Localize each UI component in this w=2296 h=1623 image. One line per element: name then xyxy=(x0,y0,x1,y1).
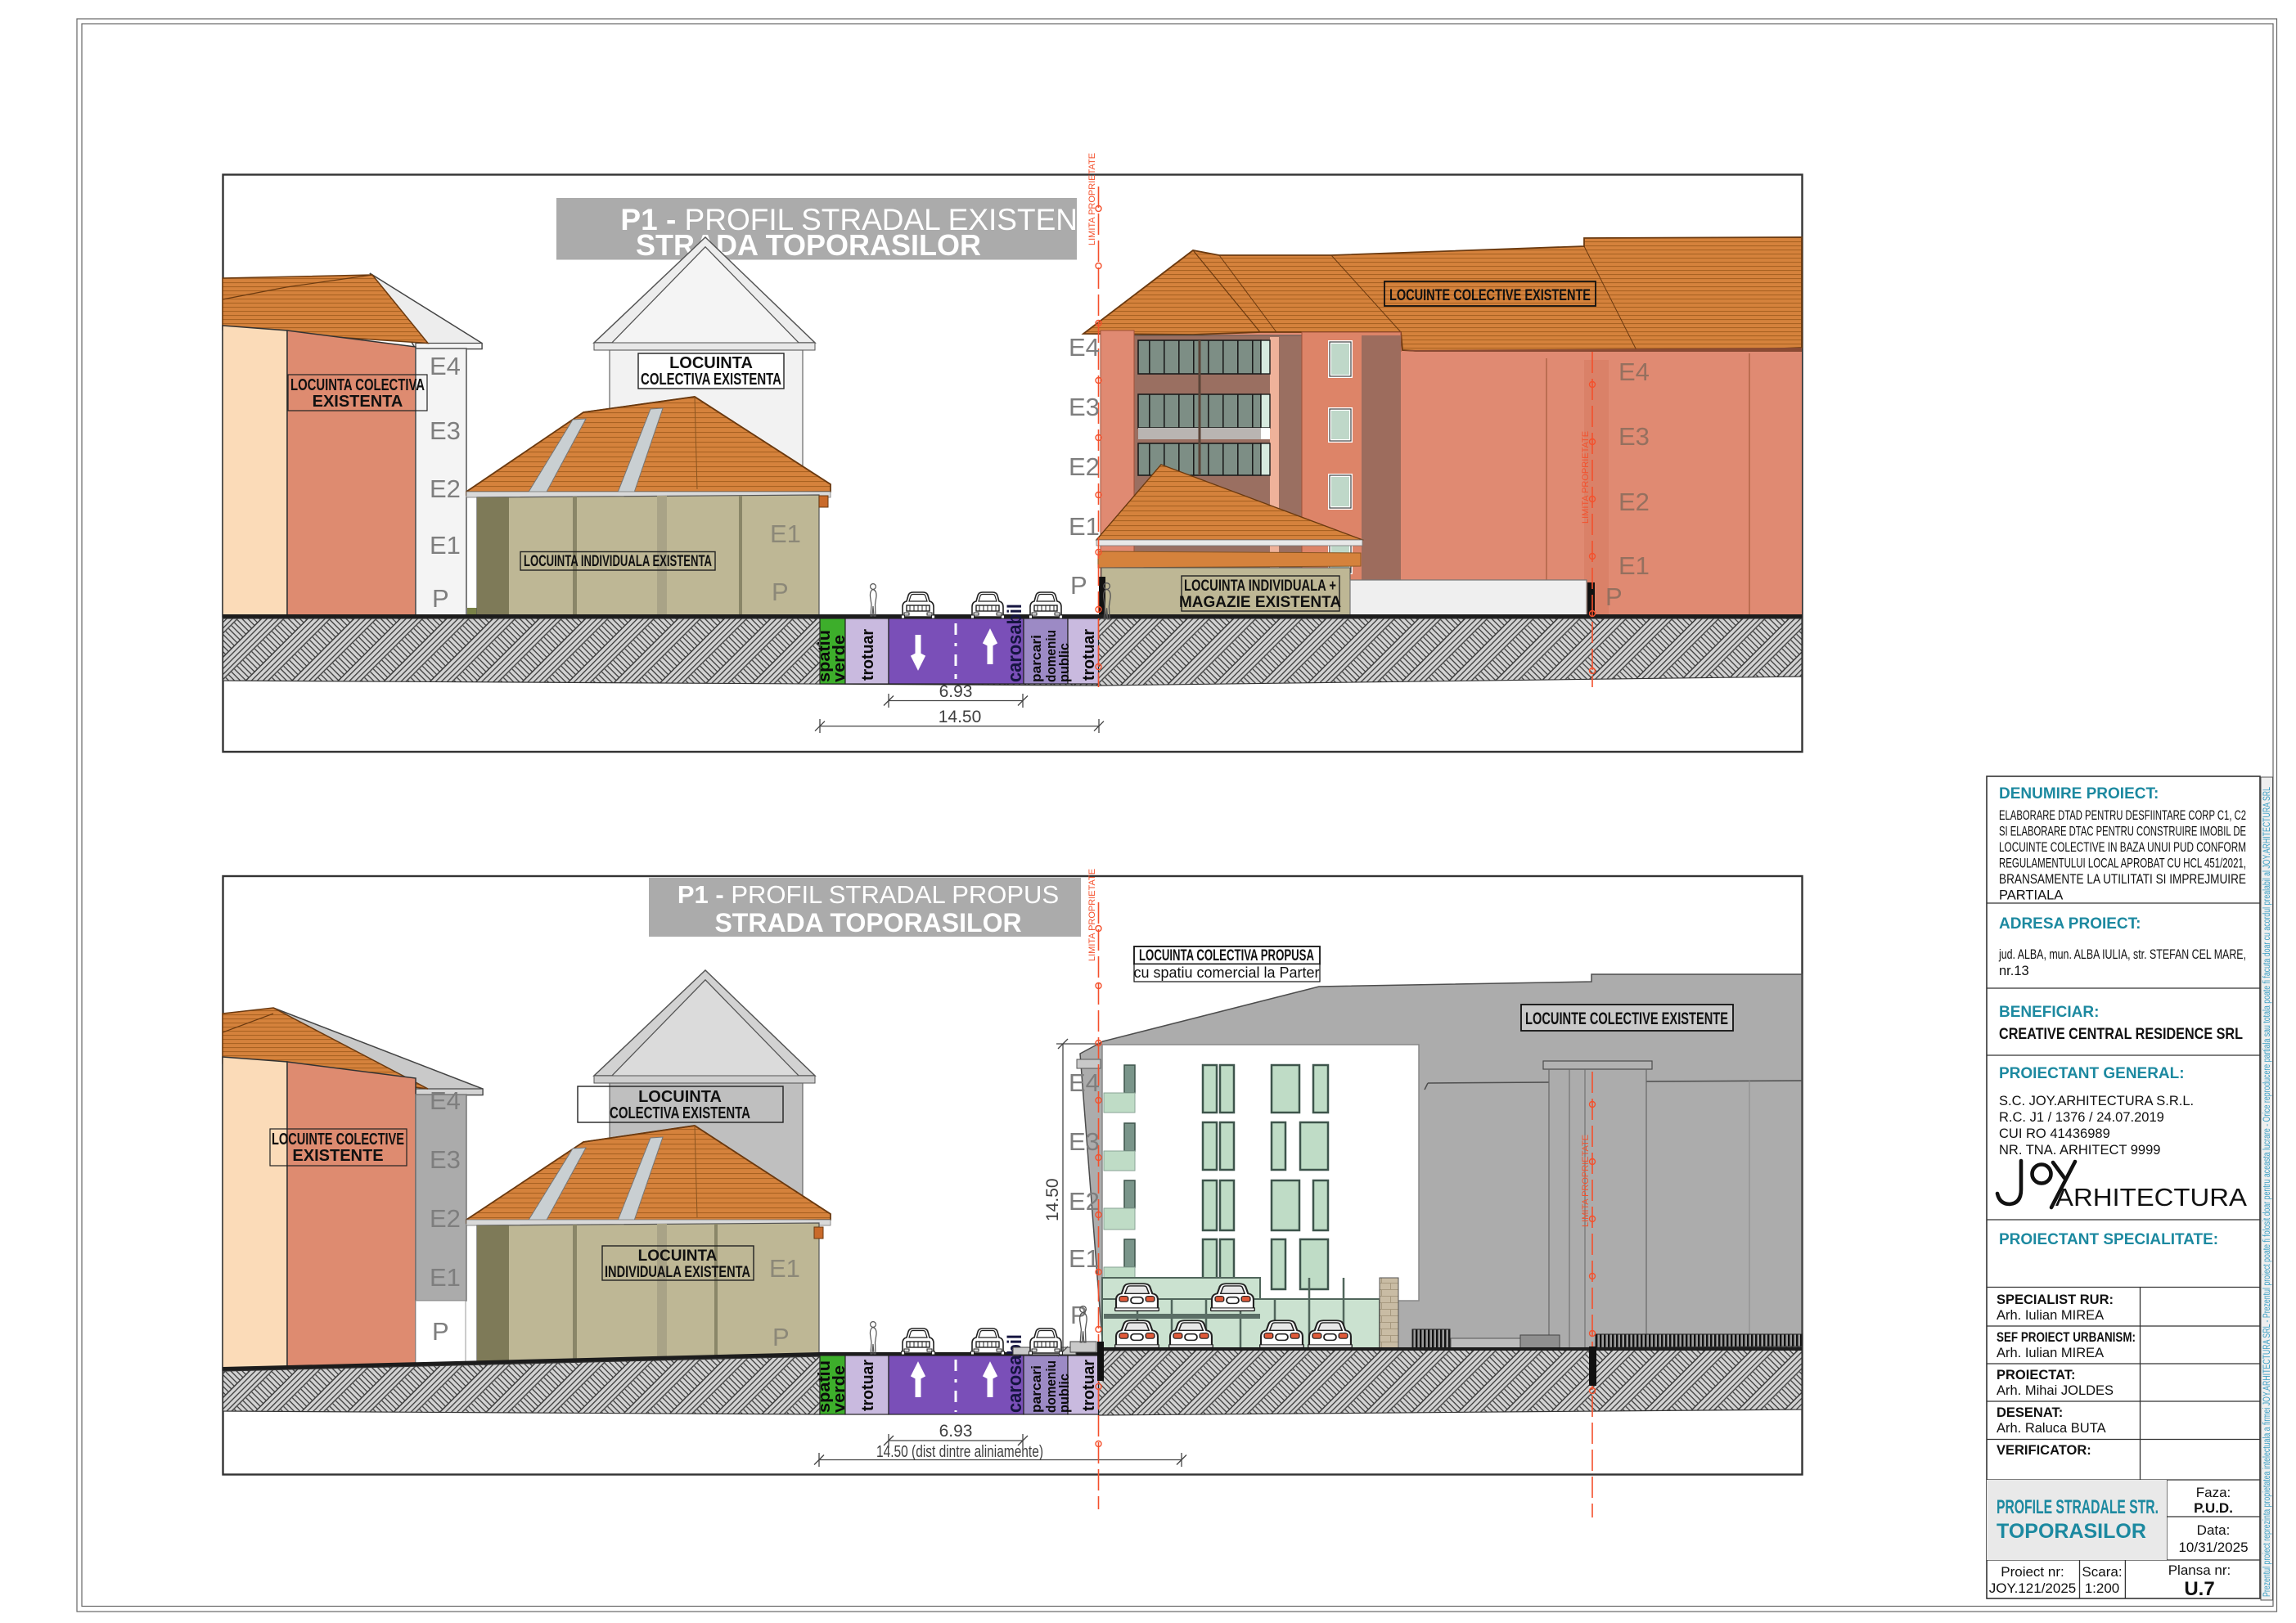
svg-text:nr.13: nr.13 xyxy=(1999,964,2029,978)
svg-text:JOY.121/2025: JOY.121/2025 xyxy=(1989,1580,2077,1596)
svg-text:E4: E4 xyxy=(1618,357,1650,386)
svg-text:E3: E3 xyxy=(430,1145,461,1174)
svg-text:Faza:: Faza: xyxy=(2196,1485,2231,1500)
svg-text:PROIECTANT GENERAL:: PROIECTANT GENERAL: xyxy=(1999,1065,2185,1082)
svg-text:E3: E3 xyxy=(430,416,461,445)
svg-text:E3: E3 xyxy=(1069,393,1100,421)
svg-text:E4: E4 xyxy=(430,352,461,380)
svg-text:Plansa nr:: Plansa nr: xyxy=(2168,1562,2231,1578)
svg-text:10/31/2025: 10/31/2025 xyxy=(2178,1540,2248,1555)
svg-text:trotuar: trotuar xyxy=(859,1360,877,1411)
svg-text:LIMITA PROPRIETATE: LIMITA PROPRIETATE xyxy=(1581,1135,1591,1227)
svg-text:verde: verde xyxy=(831,1365,849,1413)
svg-text:trotuar: trotuar xyxy=(859,629,877,681)
svg-text:E1: E1 xyxy=(769,1254,800,1283)
svg-text:14.50 (dist dintre aliniamente: 14.50 (dist dintre aliniamente) xyxy=(876,1443,1043,1461)
svg-text:LOCUINTE COLECTIVE IN BAZA UNU: LOCUINTE COLECTIVE IN BAZA UNUI PUD CONF… xyxy=(1999,840,2246,855)
svg-text:LIMITA PROPRIETATE: LIMITA PROPRIETATE xyxy=(1581,431,1591,524)
svg-text:S.C. JOY.ARHITECTURA S.R.L.: S.C. JOY.ARHITECTURA S.R.L. xyxy=(1999,1094,2194,1108)
svg-text:PROIECTANT SPECIALITATE:: PROIECTANT SPECIALITATE: xyxy=(1999,1231,2218,1248)
svg-text:Data:: Data: xyxy=(2197,1522,2231,1538)
svg-text:LOCUINTA: LOCUINTA xyxy=(669,354,753,372)
svg-text:6.93: 6.93 xyxy=(939,1422,973,1441)
svg-text:E2: E2 xyxy=(1069,452,1100,481)
svg-text:1:200: 1:200 xyxy=(2085,1580,2120,1596)
svg-text:E1: E1 xyxy=(1618,551,1650,580)
svg-text:P: P xyxy=(1070,571,1087,600)
svg-text:BENEFICIAR:: BENEFICIAR: xyxy=(1999,1004,2099,1021)
svg-text:Proiect nr:: Proiect nr: xyxy=(2001,1564,2064,1580)
svg-text:E1: E1 xyxy=(430,531,461,560)
svg-text:LOCUINTE COLECTIVE: LOCUINTE COLECTIVE xyxy=(272,1131,404,1149)
svg-text:E4: E4 xyxy=(430,1086,461,1115)
svg-text:E4: E4 xyxy=(1069,1068,1100,1097)
svg-text:ARHITECTURA: ARHITECTURA xyxy=(2055,1183,2247,1212)
svg-text:public: public xyxy=(1056,1373,1072,1413)
svg-text:P: P xyxy=(432,1317,449,1346)
svg-text:P: P xyxy=(772,1323,790,1351)
svg-text:SI ELABORARE DTAC PENTRU CONST: SI ELABORARE DTAC PENTRU CONSTRUIRE IMOB… xyxy=(1999,825,2246,839)
svg-text:trotuar: trotuar xyxy=(1080,629,1098,681)
svg-text:U.7: U.7 xyxy=(2184,1578,2214,1600)
svg-text:E2: E2 xyxy=(430,1204,461,1233)
svg-text:R.C. J1 / 1376 / 24.07.2019: R.C. J1 / 1376 / 24.07.2019 xyxy=(1999,1110,2164,1125)
svg-text:EXISTENTE: EXISTENTE xyxy=(292,1147,383,1165)
svg-text:STRADA TOPORASILOR: STRADA TOPORASILOR xyxy=(714,908,1021,937)
svg-text:E1: E1 xyxy=(430,1263,461,1292)
svg-text:Prezentul proiect reprezinta p: Prezentul proiect reprezinta propietatea… xyxy=(2262,787,2272,1597)
svg-text:P.U.D.: P.U.D. xyxy=(2194,1500,2233,1516)
svg-text:PARTIALA: PARTIALA xyxy=(1999,888,2063,903)
svg-text:DESENAT:: DESENAT: xyxy=(1997,1405,2063,1420)
svg-text:E3: E3 xyxy=(1618,422,1650,451)
svg-text:DENUMIRE PROIECT:: DENUMIRE PROIECT: xyxy=(1999,785,2159,803)
svg-text:LOCUINTA: LOCUINTA xyxy=(638,1088,722,1106)
svg-text:CUI RO 41436989: CUI RO 41436989 xyxy=(1999,1126,2110,1141)
svg-text:SPECIALIST RUR:: SPECIALIST RUR: xyxy=(1997,1293,2114,1307)
svg-text:6.93: 6.93 xyxy=(939,682,973,701)
svg-text:Arh. Mihai JOLDES: Arh. Mihai JOLDES xyxy=(1997,1383,2114,1398)
svg-text:parcari: parcari xyxy=(1029,635,1044,682)
svg-text:E2: E2 xyxy=(1618,488,1650,516)
svg-text:CREATIVE CENTRAL RESIDENCE SRL: CREATIVE CENTRAL RESIDENCE SRL xyxy=(1999,1026,2243,1043)
svg-text:cu spatiu comercial la Parter: cu spatiu comercial la Parter xyxy=(1133,964,1319,981)
svg-text:E1: E1 xyxy=(770,519,801,548)
svg-text:Arh. Iulian MIREA: Arh. Iulian MIREA xyxy=(1997,1346,2104,1360)
svg-text:carosabil: carosabil xyxy=(1004,1334,1026,1413)
svg-text:E4: E4 xyxy=(1069,333,1100,362)
svg-text:verde: verde xyxy=(831,635,849,682)
svg-text:public: public xyxy=(1056,643,1072,682)
svg-text:LIMITA PROPRIETATE: LIMITA PROPRIETATE xyxy=(1087,869,1097,961)
svg-text:E2: E2 xyxy=(430,474,461,503)
svg-text:P1 - PROFIL STRADAL PROPUS: P1 - PROFIL STRADAL PROPUS xyxy=(678,880,1059,909)
svg-text:EXISTENTA: EXISTENTA xyxy=(313,393,403,411)
svg-text:parcari: parcari xyxy=(1029,1365,1044,1413)
svg-text:TOPORASILOR: TOPORASILOR xyxy=(1997,1520,2146,1543)
svg-text:E2: E2 xyxy=(1069,1187,1100,1216)
svg-text:LOCUINTE COLECTIVE EXISTENTE: LOCUINTE COLECTIVE EXISTENTE xyxy=(1525,1009,1728,1028)
svg-text:jud. ALBA, mun. ALBA IULIA, st: jud. ALBA, mun. ALBA IULIA, str. STEFAN … xyxy=(1998,947,2246,962)
svg-text:14.50: 14.50 xyxy=(1043,1178,1062,1221)
svg-text:Arh. Iulian MIREA: Arh. Iulian MIREA xyxy=(1997,1308,2104,1323)
svg-text:COLECTIVA EXISTENTA: COLECTIVA EXISTENTA xyxy=(641,371,781,389)
svg-text:LOCUINTA INDIVIDUALA +: LOCUINTA INDIVIDUALA + xyxy=(1184,578,1336,595)
svg-text:BRANSAMENTE LA UTILITATI SI IM: BRANSAMENTE LA UTILITATI SI IMPREJMUIRE xyxy=(1999,872,2246,887)
svg-text:ADRESA PROIECT:: ADRESA PROIECT: xyxy=(1999,915,2141,933)
svg-text:LOCUINTA COLECTIVA: LOCUINTA COLECTIVA xyxy=(290,376,425,394)
svg-text:PROFILE STRADALE STR.: PROFILE STRADALE STR. xyxy=(1997,1496,2159,1518)
svg-text:14.50: 14.50 xyxy=(939,708,982,726)
svg-text:LOCUINTA INDIVIDUALA EXISTENTA: LOCUINTA INDIVIDUALA EXISTENTA xyxy=(524,553,712,570)
svg-text:LOCUINTA COLECTIVA PROPUSA: LOCUINTA COLECTIVA PROPUSA xyxy=(1139,947,1314,964)
svg-text:carosabil: carosabil xyxy=(1004,604,1026,682)
svg-text:P: P xyxy=(1070,1301,1087,1329)
svg-text:COLECTIVA EXISTENTA: COLECTIVA EXISTENTA xyxy=(610,1104,750,1122)
svg-text:ELABORARE DTAD PENTRU DESFIINT: ELABORARE DTAD PENTRU DESFIINTARE CORP C… xyxy=(1999,808,2246,823)
svg-text:E3: E3 xyxy=(1069,1127,1100,1156)
svg-text:LOCUINTE COLECTIVE EXISTENTE: LOCUINTE COLECTIVE EXISTENTE xyxy=(1389,287,1591,304)
svg-text:Arh. Raluca BUTA: Arh. Raluca BUTA xyxy=(1997,1421,2106,1436)
svg-text:INDIVIDUALA EXISTENTA: INDIVIDUALA EXISTENTA xyxy=(605,1264,750,1281)
svg-text:REGULAMENTULUI LOCAL APROBAT C: REGULAMENTULUI LOCAL APROBAT CU HCL 451/… xyxy=(1999,856,2246,871)
svg-text:VERIFICATOR:: VERIFICATOR: xyxy=(1997,1443,2091,1458)
svg-text:E1: E1 xyxy=(1069,1244,1100,1273)
svg-text:NR. TNA. ARHITECT 9999: NR. TNA. ARHITECT 9999 xyxy=(1999,1143,2160,1158)
svg-text:E1: E1 xyxy=(1069,512,1100,541)
svg-text:Scara:: Scara: xyxy=(2082,1564,2122,1580)
svg-text:MAGAZIE EXISTENTA: MAGAZIE EXISTENTA xyxy=(1179,594,1341,611)
svg-text:SEF PROIECT URBANISM:: SEF PROIECT URBANISM: xyxy=(1997,1330,2136,1345)
svg-text:LIMITA PROPRIETATE: LIMITA PROPRIETATE xyxy=(1087,153,1097,245)
svg-text:P: P xyxy=(772,578,789,606)
svg-text:LOCUINTA: LOCUINTA xyxy=(638,1248,718,1265)
svg-text:P: P xyxy=(1605,582,1623,611)
svg-text:P: P xyxy=(432,584,449,613)
svg-text:PROIECTAT:: PROIECTAT: xyxy=(1997,1368,2076,1382)
